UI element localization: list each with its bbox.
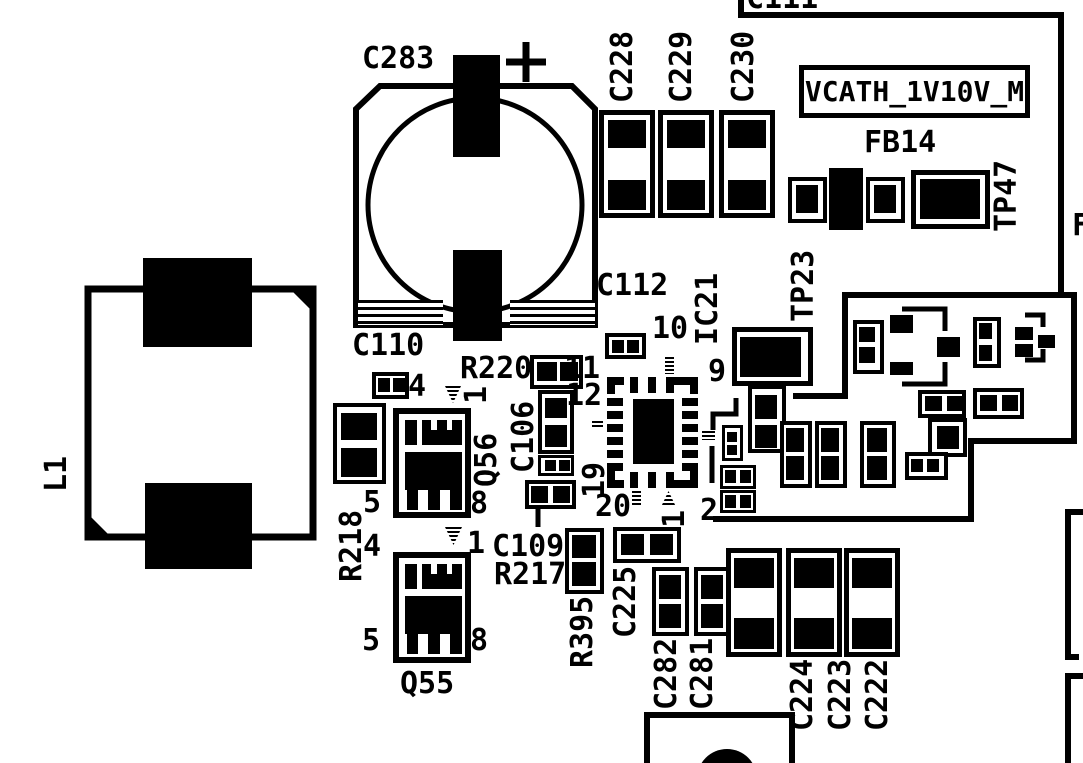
module-sq-b (937, 337, 960, 357)
pin2-pad-pair-1 (720, 465, 756, 489)
designator-c222: C222 (863, 659, 893, 731)
c106-lower-pads (538, 455, 574, 476)
module-small-hpad (905, 452, 948, 480)
designator-c281: C281 (688, 638, 718, 710)
ic21-thermal-pad (633, 399, 674, 464)
fiducial-hatch-left (592, 421, 603, 428)
c112-body (605, 333, 646, 359)
pin-ic21-19: 19 (580, 462, 610, 498)
designator-tp47: TP47 (992, 160, 1022, 232)
plus-polarity-icon (506, 42, 546, 82)
pin-q56-1: 1 (462, 386, 492, 404)
c230-body (719, 110, 775, 218)
q56-body (393, 408, 471, 518)
fiducial-hatch-bottom (632, 491, 641, 507)
pin-q55-5: 5 (362, 626, 380, 656)
designator-c230: C230 (729, 31, 759, 103)
module-hpad-a (918, 390, 966, 418)
designator-c112: C112 (596, 271, 668, 301)
l1-pad-bottom (145, 483, 252, 569)
pin-ic21-1: 1 (660, 510, 690, 528)
designator-c282: C282 (652, 638, 682, 710)
module-2pad-e (860, 421, 896, 488)
pin-q55-1: 1 (467, 529, 485, 559)
module-bracket2-top (1025, 315, 1043, 327)
c283-polarity-hatch-right (510, 300, 595, 325)
pin2-pad-pair-2 (720, 490, 756, 513)
designator-r217: R217 (494, 560, 566, 590)
r218-body (333, 403, 386, 484)
pin-q56-4: 4 (408, 372, 426, 402)
tp23-body (732, 327, 813, 386)
c228-body (599, 110, 655, 218)
fb14-body (829, 168, 863, 230)
designator-r218: R218 (337, 510, 367, 582)
designator-c106: C106 (509, 401, 539, 473)
module-sq-e (1038, 335, 1055, 348)
q55-body (393, 552, 471, 663)
designator-ic21: IC21 (693, 273, 723, 345)
c283-pad-bottom (453, 250, 502, 341)
l1-corner-wedge-top (290, 289, 313, 312)
pin-q55-8: 8 (470, 626, 488, 656)
c224-body (726, 548, 782, 657)
designator-fb14: FB14 (864, 128, 936, 158)
pin19-pad-pair (525, 480, 576, 509)
c283-pad-top (453, 55, 500, 157)
pcb-assembly-drawing: VCATH_1V10V_M (0, 0, 1083, 763)
designator-r220: R220 (460, 354, 532, 384)
c225-body (613, 527, 681, 563)
module-sq-d (1015, 327, 1033, 340)
designator-q55: Q55 (400, 669, 454, 699)
designator-c283: C283 (362, 44, 434, 74)
pin-ic21-2: 2 (700, 496, 718, 526)
designator-r395: R395 (568, 596, 598, 668)
designator-q56: Q56 (472, 433, 502, 487)
module-sq-c (890, 362, 913, 375)
fb14-pad-right (866, 177, 905, 223)
designator-c229: C229 (667, 31, 697, 103)
c223-body (786, 548, 842, 657)
net-label-box: VCATH_1V10V_M (799, 65, 1030, 118)
module-2pad-c (780, 421, 812, 488)
tp47-body (911, 170, 990, 229)
designator-tp23: TP23 (789, 250, 819, 322)
pin-q56-8: 8 (470, 489, 488, 519)
fiducial-hatch-right (702, 431, 715, 440)
fb14-pad-left (788, 177, 827, 223)
c283-polarity-hatch-left (358, 300, 443, 325)
c222-body (844, 548, 900, 657)
pin-ic21-12: 12 (566, 381, 602, 411)
module-sq-f (1015, 344, 1033, 357)
module-2pad-b (973, 317, 1001, 368)
pin-ic21-9: 9 (708, 357, 726, 387)
net-label-text: VCATH_1V10V_M (805, 75, 1024, 108)
module-2pad-d (815, 421, 847, 488)
designator-c225: C225 (611, 566, 641, 638)
right-edge-box-upper (1068, 512, 1083, 657)
designator-c228: C228 (608, 31, 638, 103)
designator-c224: C224 (788, 659, 818, 731)
edge-clipped-designator: F (1072, 211, 1083, 241)
c110-body (372, 372, 409, 399)
designator-l1: L1 (42, 456, 72, 492)
module-hpad-b (973, 388, 1024, 419)
designator-c110: C110 (352, 331, 424, 361)
small-2pad-component (722, 425, 743, 461)
l1-pad-top (143, 258, 252, 347)
module-sq-a (890, 315, 913, 333)
designator-c223: C223 (826, 659, 856, 731)
c109-r217-body (565, 528, 604, 594)
right-edge-box-lower (1068, 676, 1083, 763)
fiducial-hatch-top (665, 357, 674, 374)
bottom-component-hole (697, 749, 757, 763)
module-2pad-a (853, 320, 884, 374)
designator-c111: C111 (746, 0, 818, 14)
pin-ic21-10: 10 (652, 314, 688, 344)
c282-body (652, 567, 689, 636)
c229-body (658, 110, 714, 218)
